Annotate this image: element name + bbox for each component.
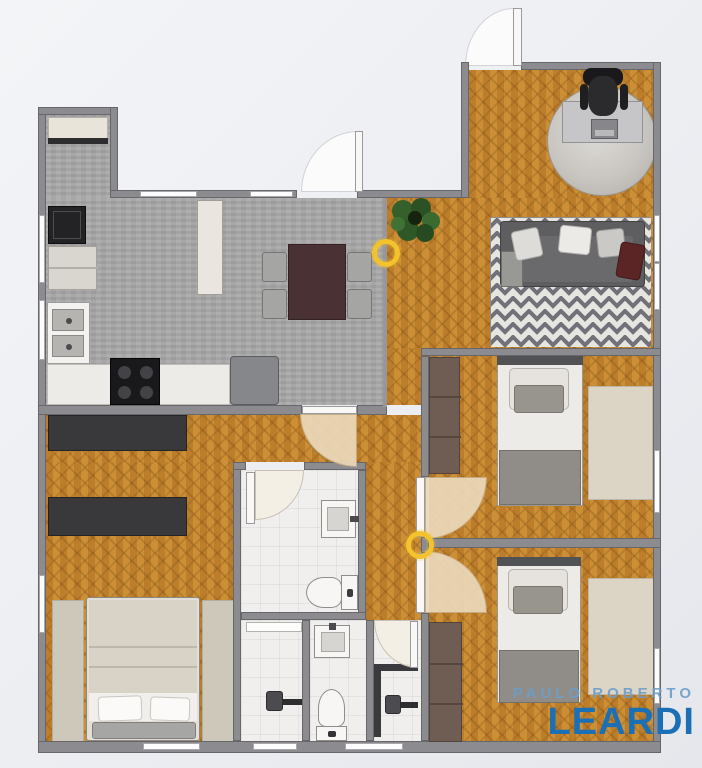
appliance-divider [49,267,98,269]
bed-pillow [150,696,191,721]
wc-sink-icon [314,625,350,658]
cooktop-icon [110,358,160,405]
wc-toilet-bowl [318,689,345,727]
faucet-dot [66,318,72,324]
shower-head-icon [266,691,283,711]
master-bed-rug-right [202,600,234,742]
window-living-1 [654,215,660,262]
wall-hall-right-a [421,356,429,477]
toilet-icon [306,577,342,608]
hallway-door-leaf [302,406,357,414]
bed-cushion [513,586,563,614]
dining-table [288,244,346,320]
sink-bowl [327,507,349,531]
window-bath-south-2 [345,743,403,750]
dining-chair [262,289,287,319]
laptop-icon [591,119,618,139]
flush-button [328,731,336,737]
tall-cabinet [197,200,223,295]
wall-hall-right-c [421,613,429,741]
bedroom-3-bed [497,557,581,703]
entry-door-2-swing [465,8,514,66]
entry-door-swing [301,131,358,192]
shower-arm [283,699,302,705]
laptop-keyboard [595,130,614,136]
duvet-fold [89,646,197,648]
window-master [39,575,45,633]
wall-wc-shower-divider [366,620,374,741]
wall-left-outer [38,107,46,753]
office-chair-arm [620,84,628,110]
master-wardrobe-2 [48,497,187,536]
bed-headboard [497,356,583,365]
shower-enclosure-wall [374,664,381,737]
wall-bath-left [233,462,241,741]
window-bedroom-2 [654,450,660,513]
watermark-line-2: LEARDI [430,703,695,741]
bedroom-2-rug [588,386,653,500]
wall-shower-wc-divider [302,620,310,741]
wall-bath-right [358,470,366,620]
wall-bath-bottom [241,612,366,620]
wardrobe-line [430,396,461,398]
master-wardrobe-1 [48,415,187,451]
floor-shower-stall [241,620,302,741]
washing-machine-icon [48,206,86,244]
divider-dining-living [383,198,387,407]
window-living-2 [654,263,660,310]
office-chair-seat [588,76,618,116]
bedroom-3-door-leaf [416,553,425,613]
wc-toilet-base [316,726,347,741]
dining-chair [347,289,372,319]
burner [140,386,153,399]
window-master-south [143,743,200,750]
burner [118,366,131,379]
watermark-line-1: PAULO ROBERTO [430,686,695,701]
service-appliance [48,246,97,290]
burner [140,366,153,379]
window-service [39,215,45,283]
shower-head-icon [385,695,401,714]
entry-door-2-leaf [513,8,522,66]
bedroom-3-rug [588,578,655,695]
fridge-icon [230,356,279,405]
master-bed-rug-left [52,600,84,742]
shower-arm [401,702,418,708]
plant-icon [388,196,442,246]
dining-chair [347,252,372,282]
wardrobe-line [430,663,463,665]
sofa-pillow [510,226,544,261]
bathroom-door-leaf [246,472,255,524]
office-chair-arm [580,84,588,110]
wardrobe-line [430,436,461,438]
bathroom-sink-icon [321,500,356,538]
wall-nook-left [461,62,469,198]
floor-plan: PAULO ROBERTO LEARDI [0,0,702,768]
toilet-tank [341,575,358,610]
burner [118,386,131,399]
wall-bath-top-a [233,462,246,470]
service-counter [48,117,108,139]
sink-basin-2 [52,335,84,357]
entry-door-leaf [355,131,363,192]
window-kitchen [39,300,45,360]
wall-living-bottom [421,348,661,356]
bed-cushion [514,385,564,413]
flush-button [347,589,353,597]
viewpoint-marker-living[interactable] [372,239,400,267]
bedroom-2-wardrobe [429,357,460,474]
wall-service-right [110,107,118,198]
bed-bench [92,722,196,739]
sink-bowl [321,632,345,652]
viewpoint-marker-hallway[interactable] [406,531,434,559]
washing-machine-panel [53,211,81,239]
shower-glass-door [246,622,302,632]
floor-passage [387,348,421,405]
bedroom-2-door-leaf [416,477,425,537]
bedroom-2-bed [497,356,583,506]
bed-headboard [497,557,581,566]
sink-basin-1 [52,309,84,331]
bed-pillow [98,695,143,722]
dining-chair [262,252,287,282]
wall-kitchen-bottom [38,405,302,415]
watermark: PAULO ROBERTO LEARDI [430,686,695,741]
wall-service-top [38,107,118,115]
bed-blanket [499,450,581,505]
shower-room-door-leaf [410,621,418,668]
faucet-dot [66,344,72,350]
sink-faucet [329,623,336,630]
service-counter-edge [48,138,108,144]
master-bed [86,597,200,741]
sink-faucet [350,516,359,522]
sofa-pillow [558,224,593,255]
duvet-fold [89,666,197,668]
wall-bedrooms-divider [429,538,661,548]
window-bath-south-1 [253,743,297,750]
window-kitchen-top-2 [250,191,293,197]
window-kitchen-top-1 [140,191,197,197]
